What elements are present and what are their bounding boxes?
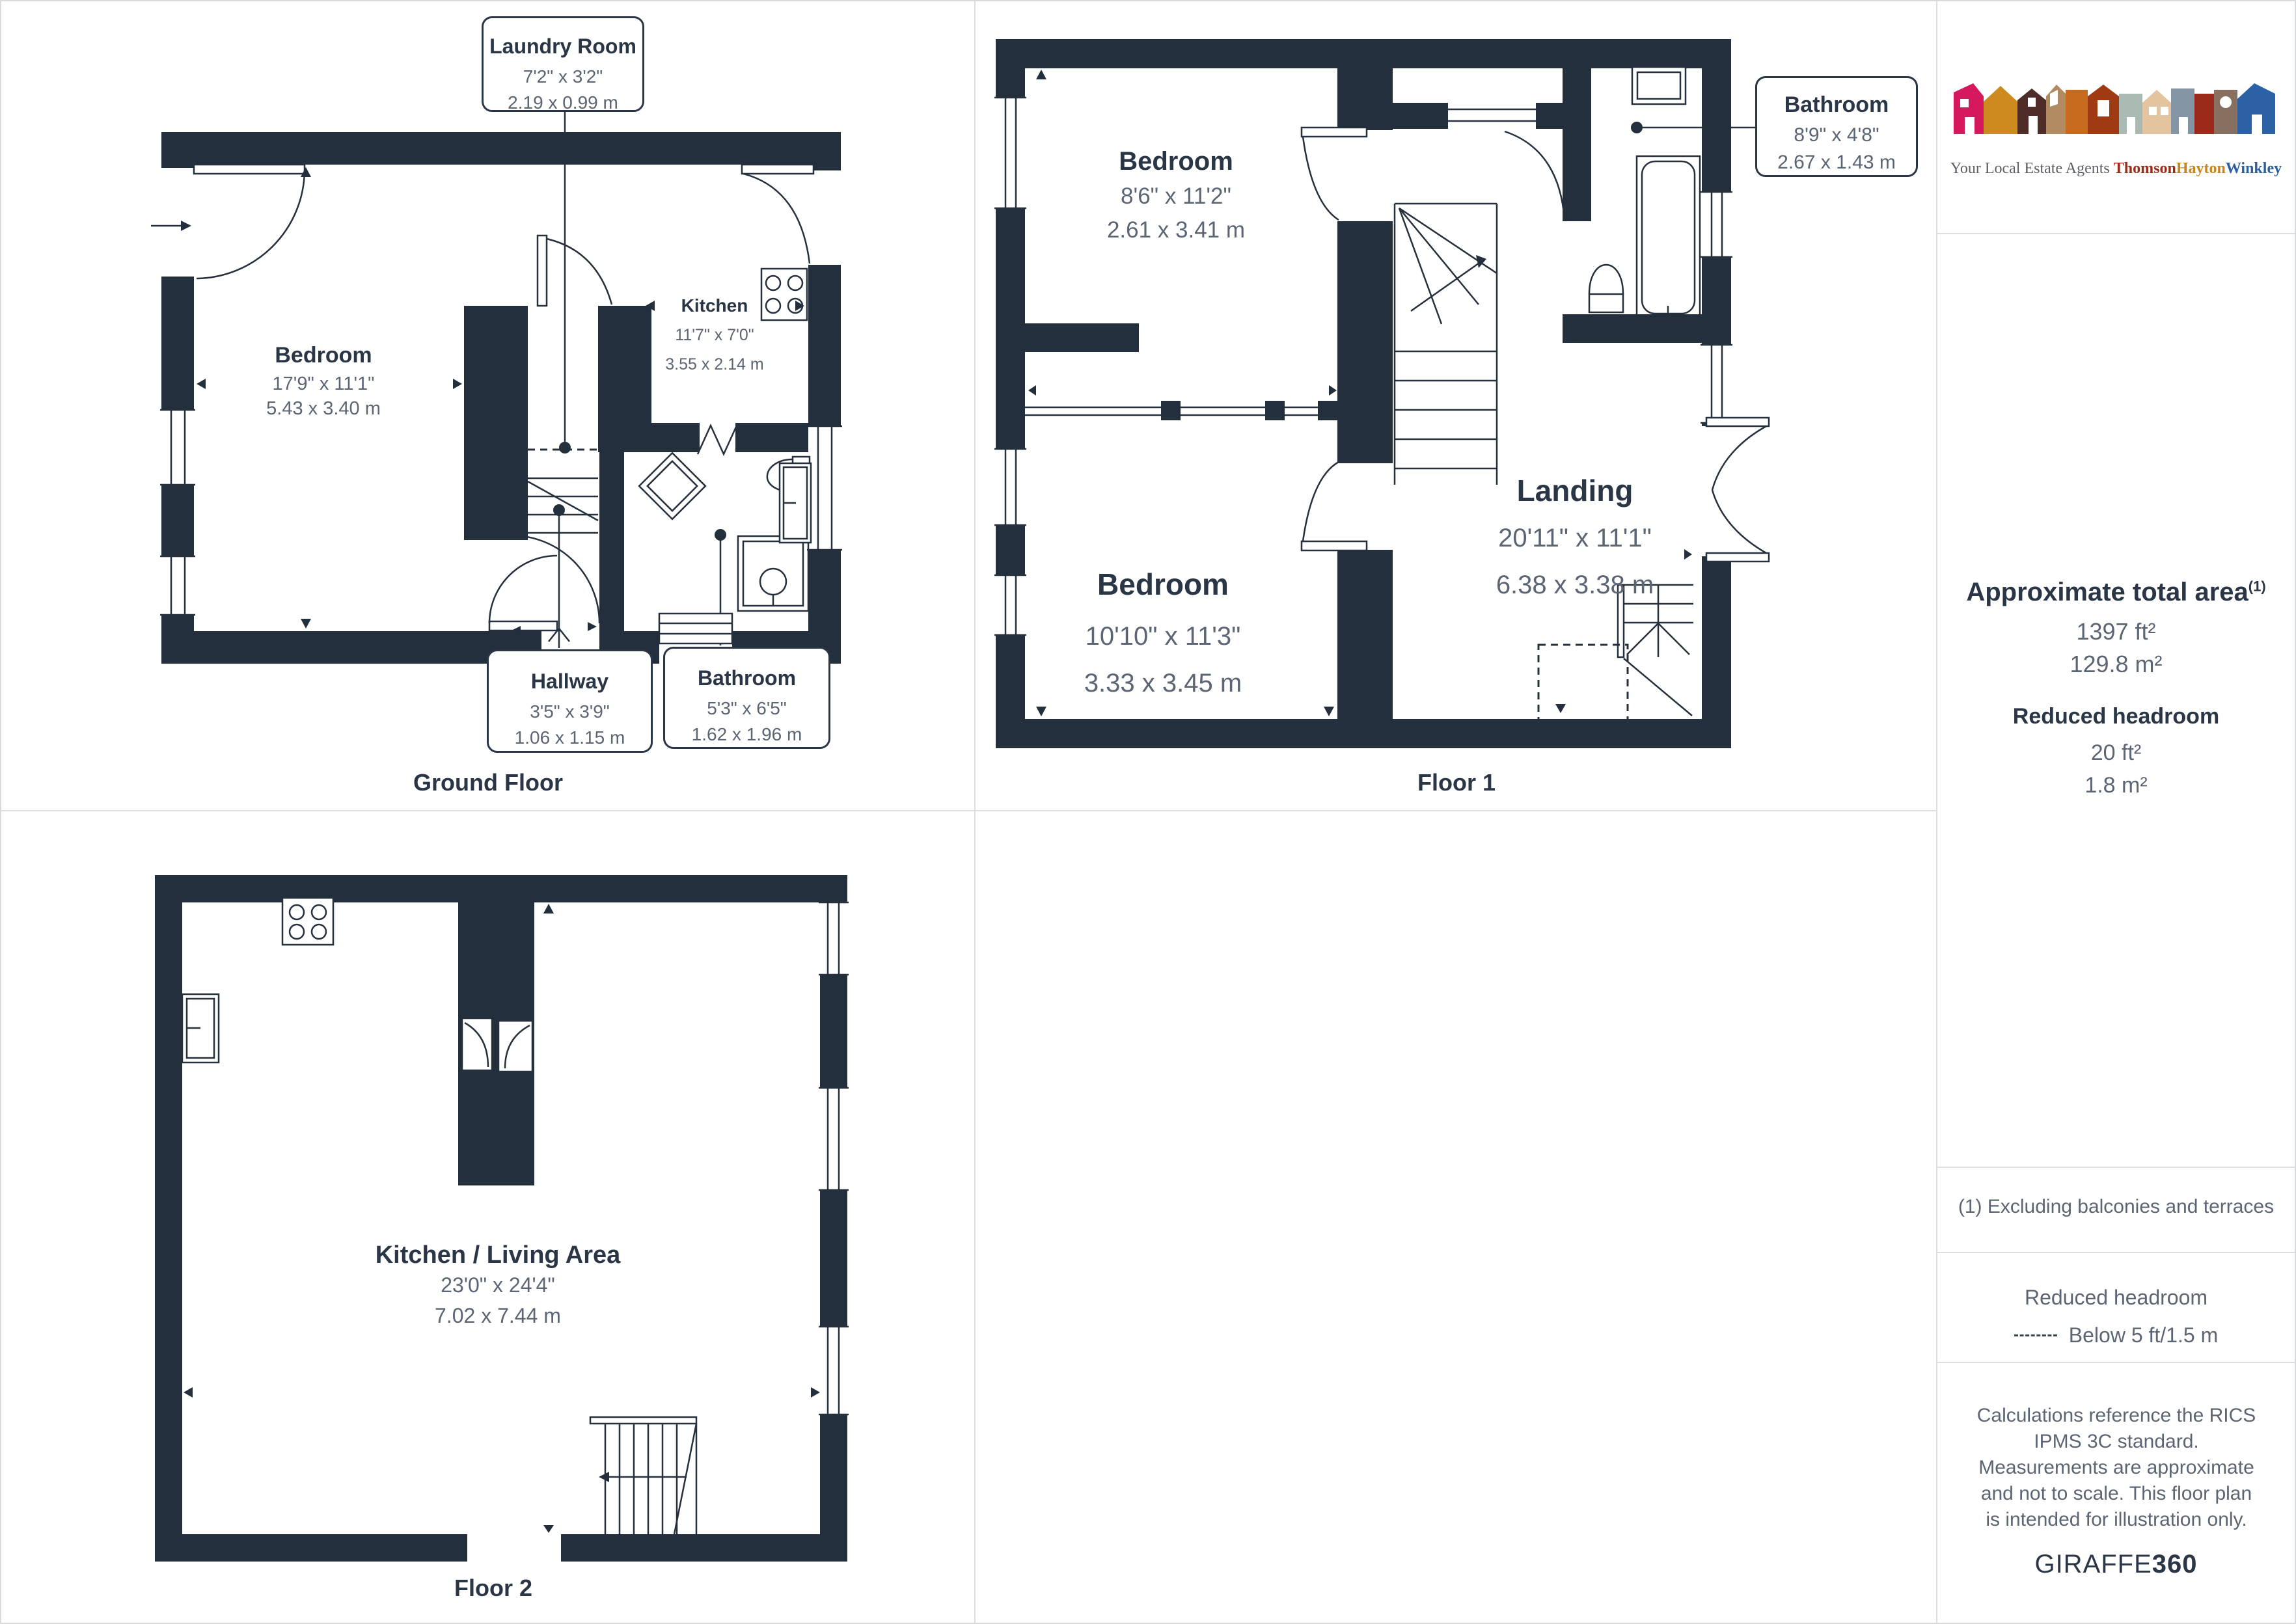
caption-ground-floor: Ground Floor (413, 769, 563, 796)
reduced-headroom-label: Reduced headroom (1937, 704, 2295, 729)
divider-sidebar-2 (1937, 1167, 2296, 1168)
caption-floor-1: Floor 1 (1417, 769, 1496, 796)
room-label-landing-f1: Landing 20'11" x 11'1" 6.38 x 3.38 m (1496, 472, 1654, 608)
room-label-bedroom-f1-bottom: Bedroom 10'10" x 11'3" 3.33 x 3.45 m (1084, 566, 1242, 707)
brand-word-thomson: Thomson (2114, 160, 2176, 177)
callout-bathroom-gf: Bathroom 5'3" x 6'5" 1.62 x 1.96 m (663, 647, 830, 749)
total-area-ft: 1397 ft² (1937, 618, 2295, 645)
reduced-headroom-m: 1.8 m² (1937, 773, 2295, 798)
divider-vertical-left (974, 0, 976, 1624)
brand-word-winkley: Winkley (2226, 160, 2282, 177)
divider-sidebar-3 (1937, 1252, 2296, 1253)
footnote: (1) Excluding balconies and terraces (1937, 1196, 2295, 1218)
callout-bathroom-f1: Bathroom 8'9" x 4'8" 2.67 x 1.43 m (1755, 76, 1918, 177)
total-area-label: Approximate total area(1) (1937, 578, 2295, 607)
callout-laundry-room: Laundry Room 7'2" x 3'2" 2.19 x 0.99 m (482, 16, 644, 112)
divider-horizontal-main (0, 810, 1936, 811)
room-label-bedroom-f1-top: Bedroom 8'6" x 11'2" 2.61 x 3.41 m (1107, 146, 1245, 247)
provider-logo: GIRAFFE360 (1937, 1550, 2295, 1579)
divider-vertical-sidebar (1936, 0, 1937, 1624)
room-label-kitchen-living-f2: Kitchen / Living Area 23'0" x 24'4" 7.02… (376, 1240, 621, 1331)
caption-floor-2: Floor 2 (454, 1575, 532, 1602)
floor-2-plan (0, 810, 974, 1624)
total-area-m: 129.8 m² (1937, 651, 2295, 678)
room-label-kitchen-gf: Kitchen 11'7" x 7'0" 3.55 x 2.14 m (665, 294, 763, 379)
legend-title: Reduced headroom (1937, 1286, 2295, 1310)
room-label-bedroom-gf: Bedroom 17'9" x 11'1" 5.43 x 3.40 m (266, 341, 381, 421)
divider-sidebar-1 (1937, 233, 2296, 234)
disclaimer: Calculations reference the RICS IPMS 3C … (1973, 1403, 2260, 1533)
footnote-ref: (1) (2248, 578, 2266, 595)
legend-row: Below 5 ft/1.5 m (1937, 1323, 2295, 1347)
brand-word-hayton: Hayton (2176, 160, 2226, 177)
legend-item: Below 5 ft/1.5 m (2069, 1323, 2218, 1347)
estate-agent-logo (1954, 77, 2279, 142)
divider-sidebar-4 (1937, 1362, 2296, 1363)
reduced-headroom-ft: 20 ft² (1937, 740, 2295, 766)
dashed-line-icon (2014, 1334, 2057, 1336)
logo-tagline: Your Local Estate Agents ThomsonHaytonWi… (1937, 160, 2295, 178)
callout-hallway: Hallway 3'5" x 3'9" 1.06 x 1.15 m (487, 649, 653, 753)
